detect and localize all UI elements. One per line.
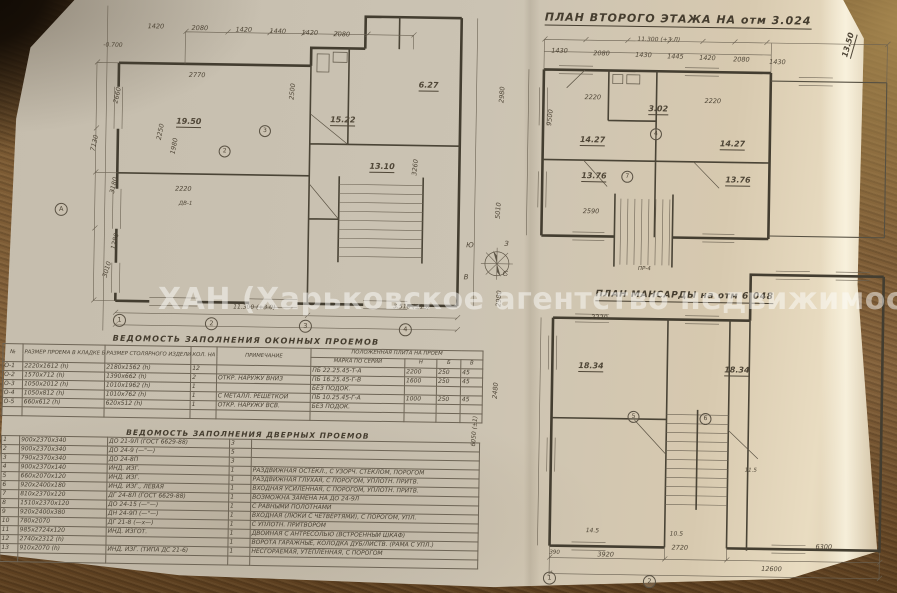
table-cell: 1 <box>228 529 250 538</box>
dimension-label: 2500 <box>288 83 296 100</box>
table-cell <box>436 404 460 413</box>
table-cell <box>436 386 460 395</box>
compass-rose <box>480 246 515 281</box>
table-cell: 10 <box>0 516 18 525</box>
axis-bubble: 1 <box>543 572 556 585</box>
windows-schedule-table: №РАЗМЕР ПРОЕМА В КЛАДКЕ БЕЗ ЧЕТВ.РАЗМЕР … <box>1 343 483 424</box>
dimension-label: 1445 <box>667 53 684 60</box>
photo-of-blueprint: ПЛАН ВТОРОГО ЭТАЖА НА отм 3.024 ПЛАН МАН… <box>0 0 897 593</box>
table-cell: 250 <box>436 395 460 404</box>
dimension-label: 390 <box>549 551 560 557</box>
room-area-label: 18.34 <box>724 366 749 376</box>
axis-bubble: 3 <box>299 320 312 333</box>
room-area-label: 6.27 <box>419 81 439 91</box>
dimension-label: 2080 <box>593 50 610 57</box>
table-cell: 5 <box>229 448 251 457</box>
dimension-label: С <box>503 271 508 278</box>
table-cell <box>436 413 460 422</box>
table-cell <box>460 405 482 414</box>
table-cell: 1 <box>2 435 20 444</box>
room-area-label: 15.22 <box>330 116 355 126</box>
table-cell <box>22 407 104 417</box>
table-cell: 5 <box>1 471 19 480</box>
dimension-label: З <box>504 241 509 248</box>
reference-mark: 5 <box>627 411 639 423</box>
dimension-label: 6300 <box>815 544 832 551</box>
table-cell: О-1 <box>3 361 23 370</box>
table-cell: 1 <box>228 511 250 520</box>
room-area-label: 3.02 <box>648 105 668 115</box>
dimension-label: 3920 <box>597 551 614 558</box>
table-cell <box>460 387 482 396</box>
dimension-label: 1420 <box>148 23 165 30</box>
table-header-cell: ПРИМЕЧАНИЕ <box>217 347 311 366</box>
dimension-label: 2220 <box>584 94 601 101</box>
table-cell <box>2 406 22 415</box>
dimension-label: 9500 <box>546 109 554 126</box>
table-cell: 1 <box>229 493 251 502</box>
table-cell: 45 <box>460 396 482 405</box>
table-cell <box>190 409 216 418</box>
table-header-cell: Б <box>437 359 461 368</box>
table-header-cell: КОЛ. НА ДОМ <box>191 346 217 364</box>
table-cell: 11 <box>0 525 18 534</box>
dimension-label: 1430 <box>551 48 568 55</box>
room-area-label: 13.76 <box>725 176 750 186</box>
dimension-label: 1420 <box>236 27 253 34</box>
table-cell: 1 <box>229 484 251 493</box>
dimension-label: ПР-4 <box>638 267 651 273</box>
table-cell: 3 <box>229 457 251 466</box>
table-header-cell: РАЗМЕР ПРОЕМА В КЛАДКЕ БЕЗ ЧЕТВ. <box>23 344 105 363</box>
dimension-label: 2080 <box>192 25 209 32</box>
table-cell: 1 <box>228 520 250 529</box>
table-cell: 1 <box>228 547 250 556</box>
axis-bubble: 2 <box>643 575 656 588</box>
dimension-label: 2220 <box>175 186 192 193</box>
table-cell: 9 <box>0 507 18 516</box>
table-cell <box>404 386 436 396</box>
room-area-label: 19.50 <box>176 118 201 128</box>
table-cell <box>228 556 250 565</box>
table-cell: 45 <box>461 369 483 378</box>
table-cell: 8 <box>1 498 19 507</box>
dimension-label: 2980 <box>498 86 506 103</box>
table-cell <box>310 411 404 421</box>
table-cell: 1 <box>229 475 251 484</box>
room-area-label: 14.27 <box>580 136 605 146</box>
dimension-label: 2220 <box>704 98 721 105</box>
table-cell: 1 <box>190 391 216 400</box>
table-cell: 4 <box>1 462 19 471</box>
table-cell: 7 <box>1 489 19 498</box>
dimension-label: ДВ-1 <box>179 202 193 208</box>
room-area-label: 18.34 <box>578 362 603 372</box>
room-area-label: 13.10 <box>369 163 394 173</box>
table-cell: 2200 <box>405 368 437 378</box>
dimension-label: 1440 <box>269 28 286 35</box>
table-cell: 1 <box>190 400 216 409</box>
doors-schedule-table: 1900х2370х340ДО 21-9Л (ГОСТ 6629-88)3290… <box>0 435 480 570</box>
room-area-label: 14.27 <box>720 140 745 150</box>
table-cell <box>104 408 190 418</box>
dimension-label: 2080 <box>733 56 750 63</box>
dimension-label: 12600 <box>761 566 782 573</box>
axis-bubble: 2 <box>205 317 218 330</box>
table-cell: 3 <box>229 439 251 448</box>
table-header-cell: № <box>3 343 23 361</box>
table-cell <box>18 553 106 563</box>
dimension-label: В <box>464 274 469 281</box>
dimension-label: 1420 <box>699 55 716 62</box>
table-cell: 45 <box>460 378 482 387</box>
dimension-label: -0.700 <box>103 43 122 49</box>
table-cell <box>404 413 436 423</box>
table-cell: 1 <box>190 382 216 391</box>
table-cell: 12 <box>0 534 18 543</box>
second-floor-plan-drawing <box>486 7 897 283</box>
agency-watermark: ХАН (Харьковское агентство недвижимости) <box>158 282 897 317</box>
axis-bubble: 4 <box>399 323 412 336</box>
dimension-label: Ю <box>466 242 474 249</box>
dimension-label: 2080 <box>333 31 350 38</box>
table-cell: 1 <box>229 466 251 475</box>
table-cell: 6 <box>1 480 19 489</box>
dimension-label: 14.5 <box>586 528 599 534</box>
table-header-cell: РАЗМЕР СТОЛЯРНОГО ИЗДЕЛИЯ <box>105 345 191 364</box>
table-cell: 1600 <box>404 377 436 387</box>
table-cell: О-3 <box>2 379 22 388</box>
dimension-label: 11.5 <box>745 469 757 475</box>
table-cell: 3 <box>1 453 19 462</box>
table-cell <box>106 554 228 565</box>
table-cell: 2 <box>191 373 217 382</box>
dimension-label: 1430 <box>635 52 652 59</box>
table-cell: 12 <box>191 364 217 373</box>
table-cell: 1 <box>228 538 250 547</box>
dimension-label: 3260 <box>411 159 419 176</box>
table-header-cell: Н <box>405 359 437 369</box>
dimension-label: 1420 <box>301 30 318 37</box>
table-cell: 250 <box>436 377 460 386</box>
dimension-label: 2720 <box>671 545 688 552</box>
table-cell: 13 <box>0 543 18 552</box>
table-header-cell: В <box>461 360 483 369</box>
dimension-label: 2770 <box>189 72 206 79</box>
dimension-label: 11.300 (+3.Л) <box>637 37 680 44</box>
dimension-label: 10.5 <box>670 531 683 537</box>
table-cell: О-2 <box>3 370 23 379</box>
dimension-label: 2480 <box>492 382 500 399</box>
table-cell: 2 <box>1 444 19 453</box>
table-cell: 250 <box>437 368 461 377</box>
table-cell: О-5 <box>2 397 22 406</box>
dimension-label: 2590 <box>583 208 600 215</box>
table-cell <box>0 552 18 561</box>
table-cell <box>216 410 310 420</box>
dimension-label: 5010 <box>495 202 503 219</box>
room-area-label: 13.76 <box>581 172 606 182</box>
dimension-label: 1430 <box>769 59 786 66</box>
table-cell: О-4 <box>2 388 22 397</box>
table-cell: 1 <box>228 502 250 511</box>
